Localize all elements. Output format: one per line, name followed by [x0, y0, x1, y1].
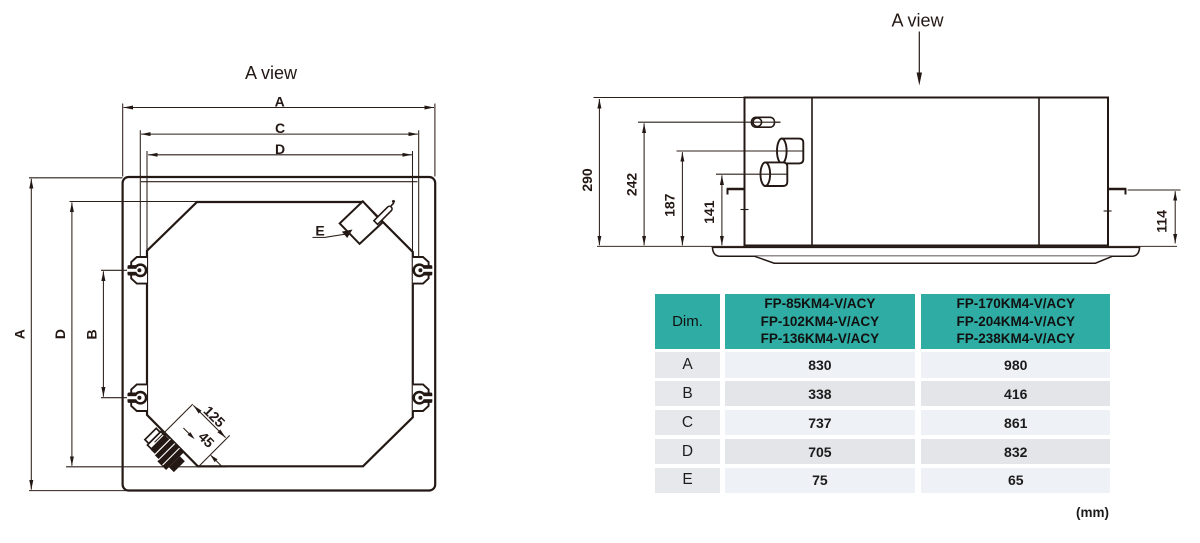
svg-text:B: B — [83, 329, 99, 339]
svg-text:D: D — [275, 141, 285, 157]
svg-text:D: D — [52, 329, 68, 339]
svg-text:290: 290 — [579, 168, 595, 192]
svg-text:187: 187 — [661, 193, 677, 217]
svg-text:141: 141 — [701, 200, 717, 224]
svg-text:A: A — [275, 93, 285, 109]
svg-text:A: A — [12, 329, 28, 339]
svg-text:242: 242 — [624, 173, 640, 197]
svg-text:114: 114 — [1154, 210, 1170, 233]
svg-text:A view: A view — [245, 63, 298, 83]
svg-text:C: C — [275, 120, 285, 136]
svg-text:A view: A view — [891, 11, 944, 31]
svg-text:E: E — [315, 223, 324, 239]
